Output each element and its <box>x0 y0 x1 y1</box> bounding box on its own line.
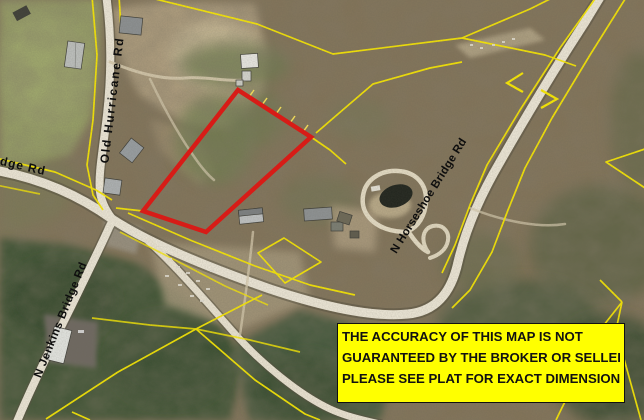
aerial-parcel-map: Old Hurricane Rd dge Rd N Jenkins Bridge… <box>0 0 644 420</box>
disclaimer-box: THE ACCURACY OF THIS MAP IS NOT GUARANTE… <box>337 323 625 403</box>
disclaimer-line-1: THE ACCURACY OF THIS MAP IS NOT <box>342 326 620 347</box>
disclaimer-line-2: GUARANTEED BY THE BROKER OR SELLER. <box>342 347 620 368</box>
disclaimer-line-3: PLEASE SEE PLAT FOR EXACT DIMENSIONS. <box>342 368 620 389</box>
